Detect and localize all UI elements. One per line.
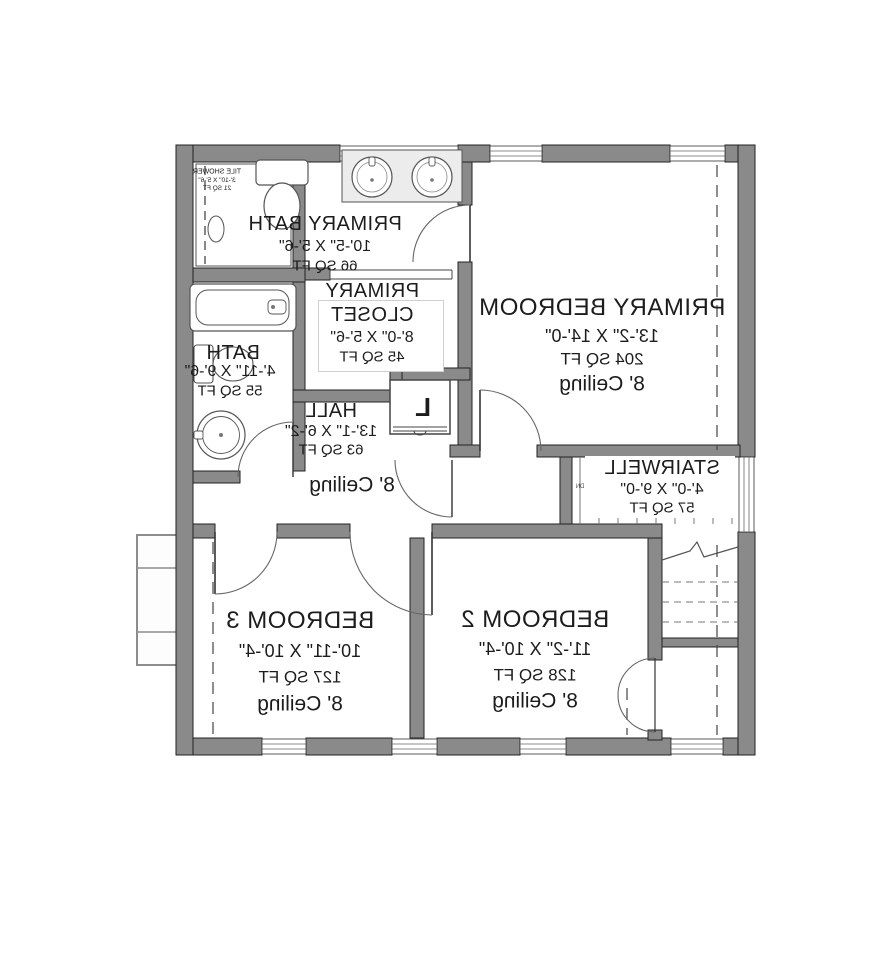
hall-name: HALL (305, 401, 357, 421)
stairwell-area: 57 SQ FT (629, 501, 694, 516)
floor-plan-drawing (0, 0, 894, 957)
primary-closet-name-line1: PRIMARY (325, 281, 419, 301)
primary-bedroom-dims: 13'-2" X 14'-0" (545, 327, 659, 345)
bath-dims: 4'-11" X 9'-6" (185, 364, 276, 380)
primary-bath-name: PRIMARY BATH (248, 214, 402, 234)
primary-bath-area: 66 SQ FT (292, 259, 357, 274)
bedroom-2-dims: 11'-2" X 10'-4" (479, 640, 591, 658)
bedroom-3-area: 127 SQ FT (258, 669, 341, 686)
tile-shower-name: TILE SHOWER (193, 169, 241, 176)
linen-closet-label: L (415, 394, 431, 420)
stairs-lower (662, 542, 738, 622)
stairs-dn-label: DN (576, 484, 585, 490)
bedroom-3-name: BEDROOM 3 (226, 609, 375, 633)
floor-plan-canvas: TILE SHOWER 3'-10" X 5'-6" 21 SQ FT PRIM… (0, 0, 894, 957)
tile-shower-area: 21 SQ FT (203, 186, 231, 193)
bedroom-2-ceiling: 8' Ceiling (492, 691, 578, 712)
hall-ceiling: 8' Ceiling (309, 475, 395, 496)
chimney-bumpout (137, 535, 180, 665)
primary-bath-dims: 10'-5" X 5'-6" (279, 239, 371, 255)
stairwell-name: STAIRWELL (604, 458, 720, 478)
tile-shower-dims: 3'-10" X 5'-6" (198, 178, 235, 185)
hall-area: 63 SQ FT (298, 443, 363, 458)
bathtub-fixture (190, 284, 296, 331)
bedroom-3-dims: 10'-11" X 10'-4" (239, 642, 361, 660)
primary-bedroom-ceiling: 8' Ceiling (559, 374, 645, 395)
vanity-fixture (342, 150, 462, 202)
primary-bedroom-area: 204 SQ FT (560, 351, 643, 368)
primary-closet-area: 45 SQ FT (339, 350, 404, 365)
stairwell-dims: 4'-0" X 9'-0" (620, 482, 703, 498)
primary-bedroom-name: PRIMARY BEDROOM (479, 296, 726, 320)
sink-fixture-bath (194, 411, 245, 459)
bedroom-3-ceiling: 8' Ceiling (257, 694, 343, 715)
bedroom-2-area: 128 SQ FT (493, 667, 576, 684)
primary-closet-name-line2: CLOSET (330, 305, 413, 325)
primary-closet-dims: 8'-0" X 5'-6" (330, 330, 413, 346)
bedroom-2-name: BEDROOM 2 (461, 608, 610, 632)
bath-area: 55 SQ FT (197, 384, 262, 399)
bath-name: BATH (206, 343, 260, 363)
hall-dims: 13'-1" X 6'-2" (285, 424, 377, 440)
